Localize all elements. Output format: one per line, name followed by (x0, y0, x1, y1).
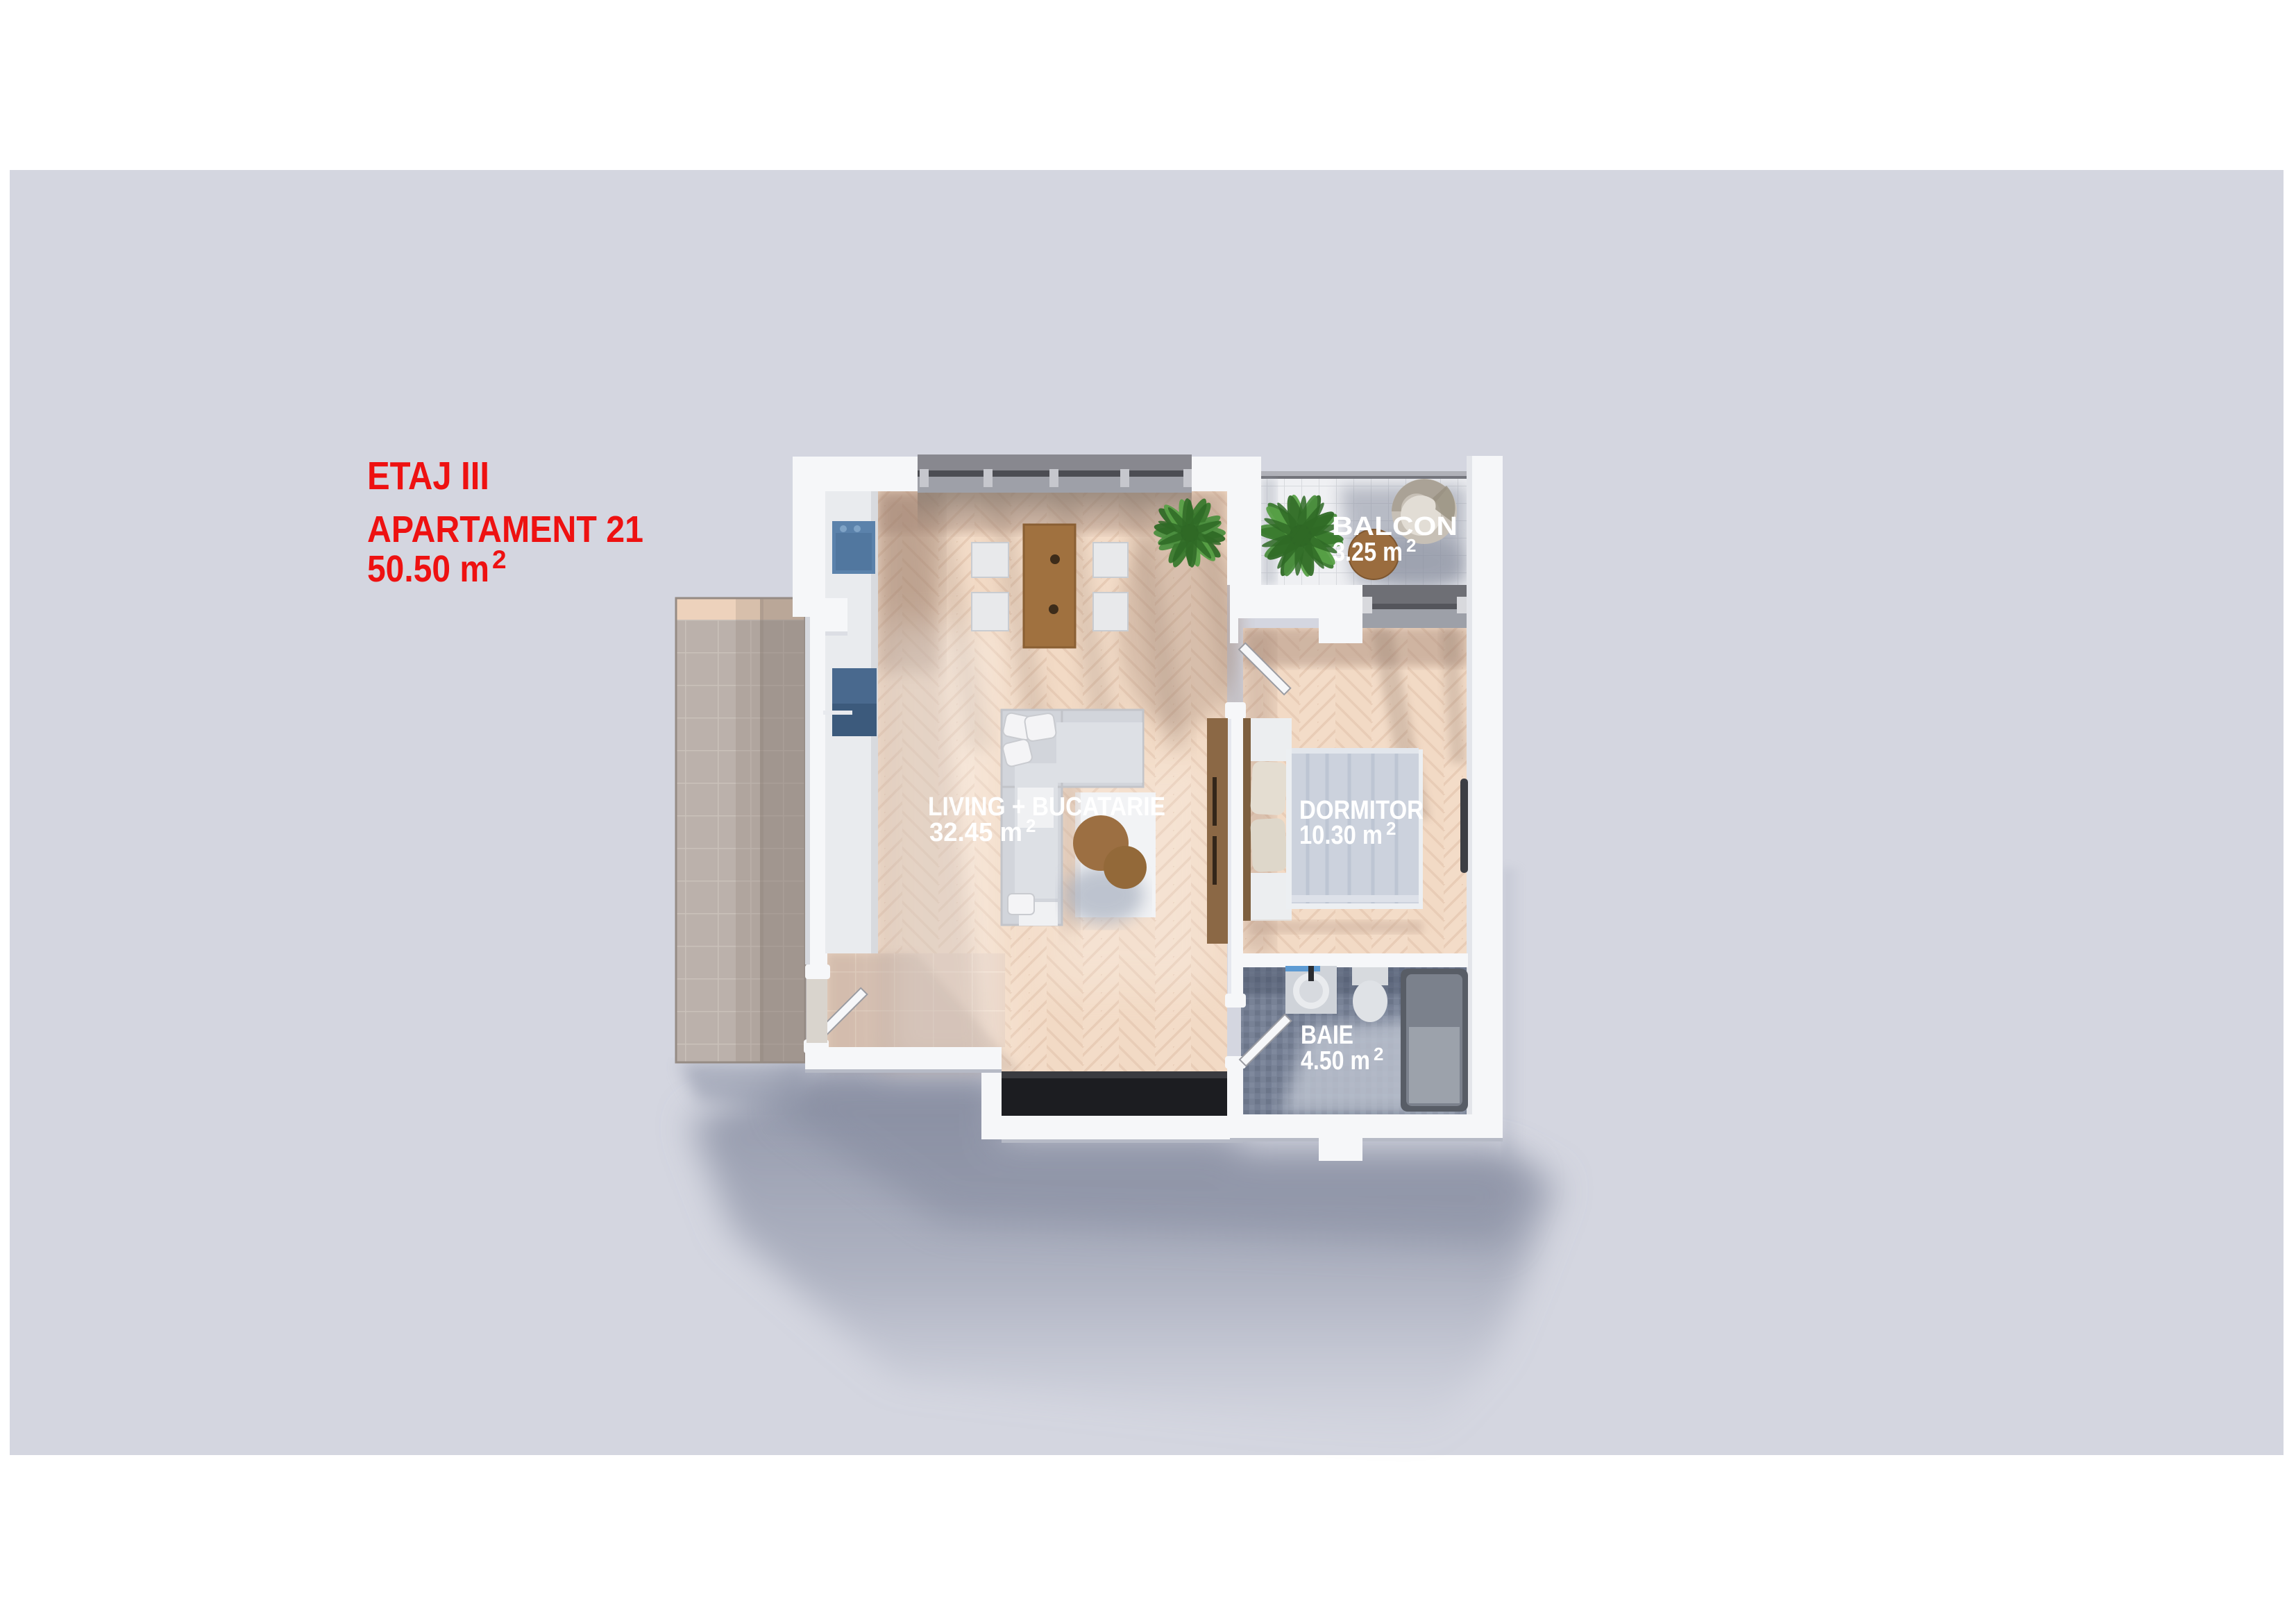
svg-text:ETAJ III: ETAJ III (367, 454, 489, 498)
svg-text:LIVING + BUCATARIE: LIVING + BUCATARIE (928, 792, 1165, 822)
svg-text:BAIE: BAIE (1301, 1021, 1353, 1050)
svg-text:2: 2 (492, 545, 507, 574)
svg-text:10.30 m: 10.30 m (1299, 821, 1383, 850)
svg-text:2: 2 (1374, 1044, 1383, 1064)
svg-text:2: 2 (1406, 535, 1416, 556)
svg-text:32.45 m: 32.45 m (929, 818, 1022, 847)
svg-text:50.50 m: 50.50 m (367, 548, 489, 590)
svg-text:APARTAMENT 21: APARTAMENT 21 (367, 509, 643, 550)
svg-text:2: 2 (1026, 815, 1036, 836)
svg-text:4.50 m: 4.50 m (1301, 1046, 1370, 1076)
svg-text:2: 2 (1386, 818, 1396, 839)
svg-text:3.25 m: 3.25 m (1333, 538, 1403, 567)
svg-text:BALCON: BALCON (1332, 512, 1458, 541)
